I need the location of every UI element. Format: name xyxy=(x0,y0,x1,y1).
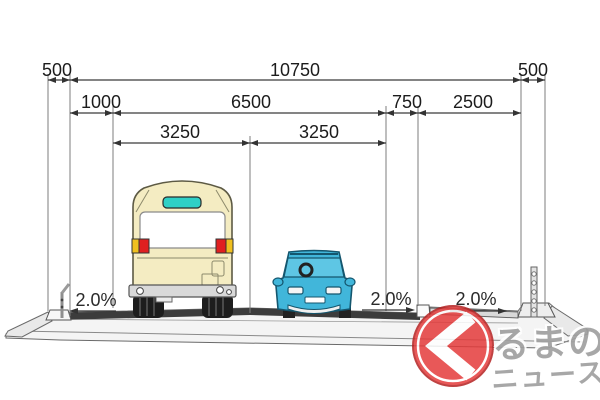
car-mirror-left xyxy=(273,278,283,286)
bus-destination-sign xyxy=(163,197,201,208)
car-windshield xyxy=(284,258,344,277)
left-curb xyxy=(46,310,71,320)
dimension-arrowheads-right xyxy=(62,77,545,146)
bus xyxy=(129,181,236,318)
bus-taillight-right-red xyxy=(216,239,226,253)
car-mirror-right xyxy=(345,278,355,286)
bus-taillight-right-amber xyxy=(226,239,233,253)
bus-rear-window xyxy=(140,212,225,248)
bus-taillight-left-amber xyxy=(132,239,139,253)
dimension-arrowheads-left xyxy=(48,77,529,146)
bus-taillight-left-red xyxy=(139,239,149,253)
car xyxy=(273,251,355,319)
watermark-logo xyxy=(413,306,493,386)
car-headlight-left xyxy=(288,287,303,294)
car-headlight-right xyxy=(326,287,341,294)
road-cross-section-diagram: 500 10750 500 1000 6500 750 2500 3250 32… xyxy=(0,0,600,400)
dimension-lines xyxy=(48,77,545,146)
diagram-drawing xyxy=(0,0,600,400)
car-license-plate xyxy=(305,297,325,303)
right-delineator-post xyxy=(531,267,537,317)
